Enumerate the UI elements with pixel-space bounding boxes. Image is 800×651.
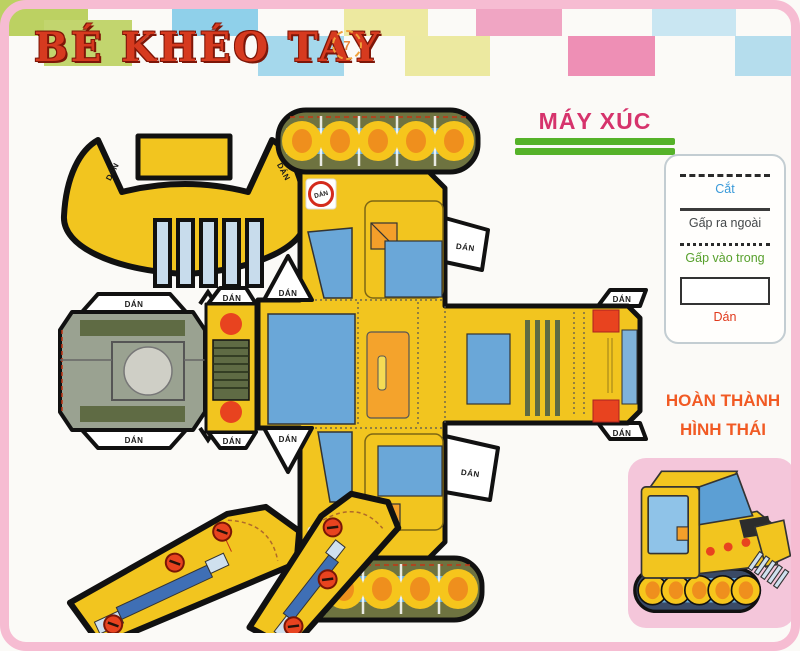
glue-tab-label: DÁN — [279, 435, 298, 444]
glue-tab-label: DÁN — [613, 429, 632, 438]
fold-out-line-sample — [680, 208, 770, 211]
glue-tab-label: DÁN — [613, 295, 632, 304]
bucket-teeth — [155, 220, 262, 286]
completed-shape-label: HOÀN THÀNH HÌNH THÁI — [648, 386, 798, 444]
legend-item-cut: Cắt — [680, 174, 770, 196]
completed-model-box — [628, 458, 795, 628]
glue-label: Dán — [714, 310, 737, 324]
grill-strip-piece: DÁN DÁN — [206, 288, 256, 448]
fold-in-label: Gấp vào trong — [685, 251, 764, 265]
scanned-craft-page: BÉ KHÉO TAY 7 MÁY XÚC Cắt Gấp ra ngoài G… — [0, 0, 800, 651]
mini-body — [642, 471, 782, 578]
underside-piece: DÁN DÁN — [60, 292, 216, 448]
papercraft-template: DÁN DÁN DÁN DÁN — [50, 98, 670, 633]
page-number-badge: 7 — [332, 30, 362, 60]
legend-box: Cắt Gấp ra ngoài Gấp vào trong Dán — [664, 154, 786, 344]
glue-tab-label: DÁN — [223, 437, 242, 446]
track-top-piece — [278, 110, 478, 172]
fold-in-line-sample — [680, 243, 770, 246]
glue-tab-label: DÁN — [125, 436, 144, 445]
body-cross-piece: DÁN — [258, 170, 646, 560]
model-heading-text: MÁY XÚC — [505, 108, 685, 135]
page-title: BÉ KHÉO TAY — [34, 24, 382, 71]
glue-tab-label: DÁN — [223, 294, 242, 303]
glue-tab-label: DÁN — [125, 300, 144, 309]
glue-area-sample — [680, 277, 770, 305]
completed-line-2: HÌNH THÁI — [648, 415, 798, 444]
decorative-square — [735, 36, 800, 76]
glue-tab-label: DÁN — [279, 289, 298, 298]
decorative-square — [405, 36, 490, 76]
legend-item-fold-out: Gấp ra ngoài — [680, 208, 770, 230]
legend-item-fold-in: Gấp vào trong — [680, 243, 770, 265]
model-heading: MÁY XÚC — [505, 108, 685, 155]
completed-excavator-illustration — [628, 458, 795, 628]
fold-out-label: Gấp ra ngoài — [689, 216, 761, 230]
completed-line-1: HOÀN THÀNH — [648, 386, 798, 415]
decorative-square — [568, 36, 655, 76]
legend-item-glue: Dán — [680, 277, 770, 324]
cut-line-sample — [680, 174, 770, 177]
glue-sign: DÁN — [306, 179, 336, 209]
heading-underline-2 — [515, 148, 675, 155]
heading-underline-1 — [515, 138, 675, 145]
bucket-piece: DÁN DÁN — [64, 136, 306, 286]
decorative-square — [652, 0, 736, 36]
cut-label: Cắt — [715, 182, 734, 196]
decorative-square — [476, 0, 562, 36]
